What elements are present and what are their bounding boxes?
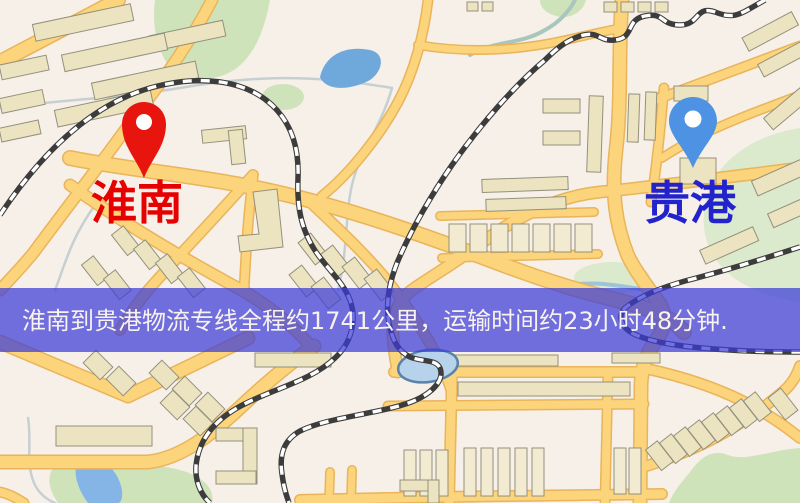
map-canvas: 淮南 贵港 淮南到贵港物流专线全程约1741公里，运输时间约23小时48分钟. <box>0 0 800 503</box>
route-info-text: 淮南到贵港物流专线全程约1741公里，运输时间约23小时48分钟. <box>22 307 728 335</box>
destination-label: 贵港 <box>644 176 737 230</box>
origin-label: 淮南 <box>91 176 183 230</box>
route-info-banner: 淮南到贵港物流专线全程约1741公里，运输时间约23小时48分钟. <box>0 288 800 352</box>
route-map-image: 淮南 贵港 淮南到贵港物流专线全程约1741公里，运输时间约23小时48分钟. <box>0 0 800 503</box>
